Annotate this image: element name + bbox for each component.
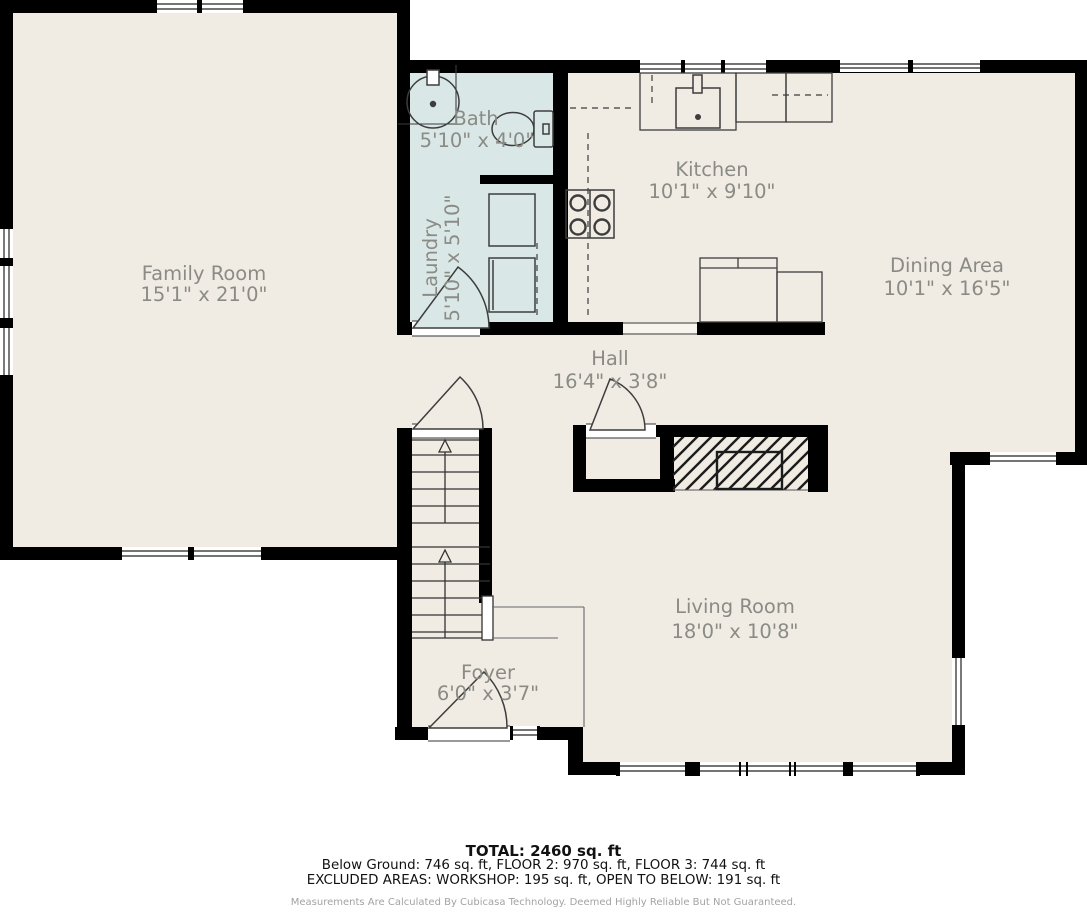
window (153, 0, 247, 13)
family-hall-opening (397, 335, 412, 428)
disclaimer-text: Measurements Are Calculated By Cubicasa … (0, 897, 1087, 908)
floor-plan-page: Family Room 15'1" x 21'0" Bath 5'10" x 4… (0, 0, 1087, 916)
room-label-bath: Bath (453, 107, 498, 130)
window (0, 226, 13, 378)
room-dims-bath: 5'10" x 4'0" (420, 129, 535, 152)
window (118, 547, 265, 560)
room-label-dining-area: Dining Area (890, 254, 1004, 277)
area-summary: TOTAL: 2460 sq. ft Below Ground: 746 sq.… (0, 843, 1087, 908)
room-dims-dining-area: 10'1" x 16'5" (883, 277, 1010, 300)
window (986, 452, 1060, 465)
room-label-family-room: Family Room (142, 262, 266, 285)
room-label-kitchen: Kitchen (675, 158, 748, 181)
room-dims-family-room: 15'1" x 21'0" (140, 283, 267, 306)
stairs-end-post (482, 596, 493, 640)
total-area-text: TOTAL: 2460 sq. ft (0, 843, 1087, 859)
room-dims-laundry: 5'10" x 5'10" (441, 194, 464, 321)
room-dims-foyer: 6'0" x 3'7" (437, 682, 539, 705)
window (952, 655, 965, 728)
floor-areas-text: Below Ground: 746 sq. ft, FLOOR 2: 970 s… (0, 859, 1087, 874)
room-label-laundry: Laundry (419, 218, 442, 297)
excluded-areas-text: EXCLUDED AREAS: WORKSHOP: 195 sq. ft, OP… (0, 874, 1087, 889)
kitchen-hall-opening (623, 322, 697, 335)
room-dims-hall: 16'4" x 3'8" (553, 370, 668, 393)
floor-plan-svg: Family Room 15'1" x 21'0" Bath 5'10" x 4… (0, 0, 1087, 800)
window (510, 726, 540, 740)
window (636, 60, 770, 73)
room-label-hall: Hall (591, 347, 628, 370)
window (616, 762, 920, 776)
hatched-open-area (673, 437, 808, 490)
room-dims-kitchen: 10'1" x 9'10" (648, 180, 775, 203)
window (836, 60, 984, 72)
room-dims-living-room: 18'0" x 10'8" (671, 620, 798, 643)
room-label-living-room: Living Room (675, 595, 795, 618)
room-label-foyer: Foyer (461, 661, 516, 684)
